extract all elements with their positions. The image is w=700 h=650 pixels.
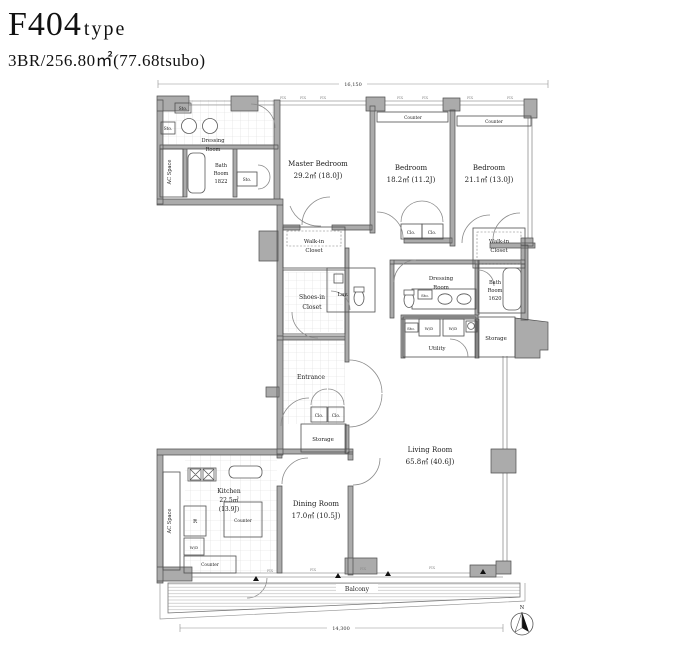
storage-mid-label: Storage — [312, 437, 334, 443]
closet-small-label: Clo. — [407, 231, 416, 236]
bath-room-top-label: Bath — [215, 163, 228, 169]
living-room-label: Living Room — [408, 446, 453, 454]
washer-dryer-label: W/D — [449, 326, 457, 331]
counter-label: Counter — [485, 120, 504, 125]
toilet — [354, 291, 364, 306]
wash-basin — [203, 119, 218, 134]
plan-area-subtitle: 3BR/256.80㎡(77.68tsubo) — [8, 46, 206, 71]
master-bedroom-area: 29.2㎡ (18.0J) — [294, 172, 343, 180]
compass-north-arrow: N — [511, 605, 533, 635]
wash-basin — [182, 119, 197, 134]
fix-window-label: FIX — [310, 568, 317, 572]
dimension-bottom: 14,300 — [332, 626, 350, 632]
kitchen-label: Kitchen — [217, 488, 241, 495]
bath-room-right-size: 1620 — [489, 296, 502, 302]
storage-small-label: Sto. — [243, 178, 252, 183]
fix-window-label: FIX — [360, 567, 367, 571]
wash-basin — [438, 294, 452, 304]
counter-label: Counter — [201, 563, 220, 568]
floor-plan-drawing: 16,150 14,300 N Dressing Room AC Space B… — [0, 0, 700, 650]
bathtub-right — [503, 268, 521, 310]
bath-room-right-label: Bath — [489, 280, 502, 286]
walk-in-closet-left-label: Closet — [305, 248, 323, 254]
dressing-room-top-label: Dressing — [202, 138, 226, 144]
storage-small-label: Sto. — [164, 127, 173, 132]
fix-window-label: FIX — [422, 96, 429, 100]
dressing-room-right-label: Room — [433, 285, 449, 291]
lav-label: Lav. — [338, 292, 349, 298]
kitchen-sink — [229, 466, 262, 478]
fix-window-label: FIX — [429, 566, 436, 570]
bedroom-right-area: 21.1㎡ (13.0J) — [465, 176, 514, 184]
washer-dryer-label: W/D — [190, 545, 198, 550]
floor-plan-page: F404 type 3BR/256.80㎡(77.68tsubo) — [0, 0, 700, 650]
fix-window-label: FIX — [267, 569, 274, 573]
fix-window-label: FIX — [320, 96, 327, 100]
walk-in-closet-right-label: Walk-in — [489, 239, 510, 245]
fix-window-label: FIX — [467, 96, 474, 100]
bedroom-center-area: 18.2㎡ (11.2J) — [387, 176, 436, 184]
shoes-in-closet-label: Closet — [302, 304, 322, 311]
kitchen-area: 22.5㎡ — [219, 496, 238, 504]
entrance-label: Entrance — [297, 374, 325, 381]
closet-small-label: Clo. — [315, 414, 324, 419]
bedroom-center-label: Bedroom — [395, 164, 428, 172]
toilet-tank — [354, 287, 364, 292]
counter-label: Counter — [234, 519, 253, 524]
dining-room-area: 17.0㎡ (10.5J) — [292, 512, 341, 520]
counter-label: Counter — [404, 116, 423, 121]
utility-label: Utility — [428, 346, 446, 352]
fix-window-label: FIX — [280, 96, 287, 100]
shoes-in-closet-label: Shoes-in — [299, 294, 325, 301]
balcony-label: Balcony — [345, 586, 370, 593]
wash-basin — [457, 294, 471, 304]
kitchen-area-jo: (13.9J) — [219, 506, 239, 513]
bathtub-top — [188, 153, 205, 193]
dining-room-label: Dining Room — [293, 500, 340, 508]
dressing-room-right-label: Dressing — [429, 276, 454, 282]
living-room-area: 65.8㎡ (40.6J) — [406, 458, 455, 466]
dimension-top: 16,150 — [344, 82, 362, 88]
storage-small-label: Sto. — [407, 326, 415, 331]
bedroom-right-label: Bedroom — [473, 164, 506, 172]
washer-dryer-label: W/D — [425, 326, 433, 331]
storage-right-label: Storage — [485, 336, 507, 342]
utility-sink — [468, 323, 475, 330]
closet-small-label: Clo. — [428, 231, 437, 236]
plan-type-suffix: type — [84, 18, 126, 41]
bath-room-top-size: 1822 — [215, 179, 228, 185]
walk-in-closet-left-label: Walk-in — [304, 239, 325, 245]
toilet-tank — [404, 290, 414, 295]
plan-code: F404 — [8, 6, 82, 44]
fix-window-label: FIX — [300, 96, 307, 100]
stove — [188, 468, 216, 481]
ac-space-top-label: AC Space — [167, 160, 173, 186]
storage-small-label: Sto. — [421, 293, 429, 298]
storage-small-label: Sto. — [179, 107, 188, 112]
compass-north-label: N — [520, 605, 525, 611]
plan-header: F404 type 3BR/256.80㎡(77.68tsubo) — [8, 6, 206, 71]
fix-window-label: FIX — [507, 96, 514, 100]
walk-in-closet-right-label: Closet — [490, 248, 508, 254]
plan-title: F404 type — [8, 6, 206, 44]
bath-room-top-label: Room — [214, 171, 229, 177]
master-bedroom-label: Master Bedroom — [288, 160, 348, 168]
closet-small-label: Clo. — [332, 414, 341, 419]
ac-space-bottom-label: AC Space — [167, 509, 173, 535]
fix-window-label: FIX — [397, 96, 404, 100]
bath-room-right-label: Room — [488, 288, 503, 294]
dressing-room-top-label: Room — [206, 147, 221, 153]
